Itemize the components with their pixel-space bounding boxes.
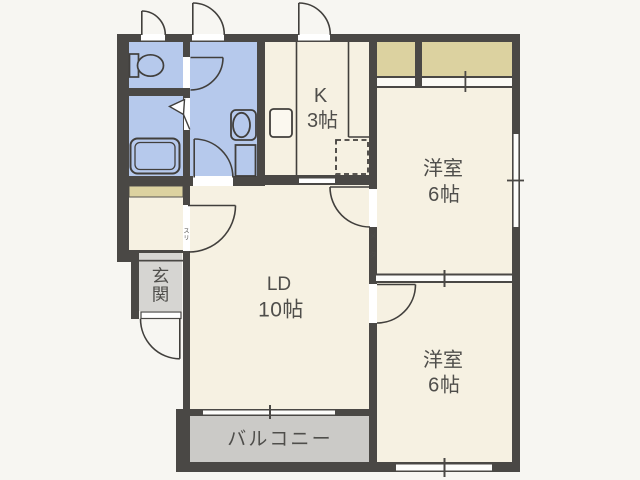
svg-text:ス: ス (183, 228, 189, 235)
svg-text:｜: ｜ (370, 241, 377, 249)
svg-text:3帖: 3帖 (307, 109, 338, 132)
svg-text:メ: メ (370, 233, 377, 240)
svg-text:洋室: 洋室 (423, 157, 463, 180)
svg-text:K: K (314, 85, 328, 107)
svg-text:タ: タ (370, 250, 377, 259)
svg-text:玄: 玄 (152, 266, 170, 286)
svg-text:6帖: 6帖 (428, 374, 461, 397)
svg-text:バルコニー: バルコニー (227, 429, 333, 450)
svg-text:洋室: 洋室 (423, 349, 463, 372)
svg-text:リ: リ (183, 236, 189, 242)
svg-text:6帖: 6帖 (428, 183, 461, 206)
svg-text:LD: LD (267, 274, 291, 295)
svg-text:関: 関 (152, 285, 170, 305)
svg-text:10帖: 10帖 (258, 299, 304, 322)
